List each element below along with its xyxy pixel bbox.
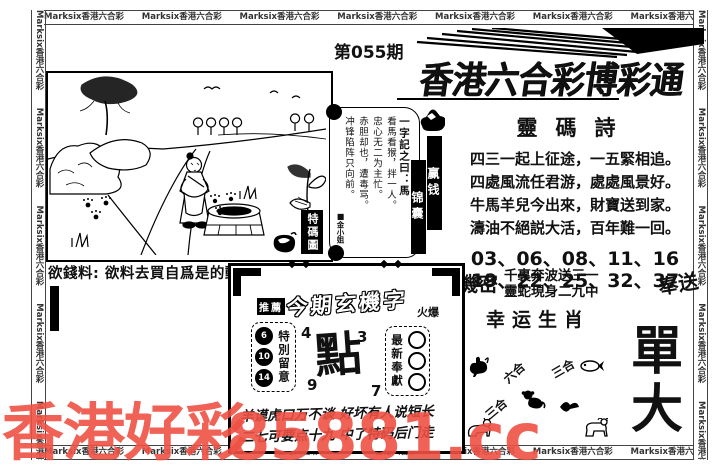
lucky-zodiac-heading: 幸运生肖 [486,305,590,332]
ink-bar [50,286,59,331]
latest-offering-numbers [408,331,426,391]
rooster-icon [468,355,490,377]
hot-tag: 火爆 [417,304,439,320]
mystery-word-title: 今期玄機字 [286,284,409,322]
scroll-roll-top [326,104,342,120]
big-char-single: 單 [631,326,683,378]
special-attention-badge: 6 10 14 特別留意 [251,322,296,392]
special-attention-numbers: 6 10 14 [255,327,273,387]
lottery-sheet-page: Marksix香港六合彩 Marksix香港六合彩 Marksix香港六合彩 M… [0,0,720,471]
special-number-picture: 特碼圖 [46,71,333,262]
goat-icon [582,418,608,438]
newspaper-title: 香港六合彩博彩通 [416,50,688,104]
lucky-numbers-row1: 03、06、08、11、16 [452,248,698,270]
zodiac-label-liuhe: 六合 [499,358,528,387]
issue-number: 第055期 [334,38,404,63]
birds [204,87,300,98]
top-marquee: Marksix香港六合彩 Marksix香港六合彩 Marksix香港六合彩 M… [44,10,694,25]
special-attention-label: 特別留意 [276,330,292,384]
corner-number-7: 7 [371,382,381,400]
secret-tip-row: 機密 千裏奔波送三一 靈蛇現身二九中 奉送 [458,268,698,300]
diamond-ornament [380,260,388,268]
riddle-text: 一字記之曰：馬看馬看猴，拌一人。忠心无二为主忙。赤胆却也，遭毒骂。冲锋陷阵只向前… [341,116,411,244]
zodiac-label-sanhe-1: 三合 [548,355,577,382]
ingot-icon [418,108,445,136]
scroll-roll-bottom [328,245,344,261]
special-number-stamp: 特碼圖 [301,210,323,254]
mystery-word-char: 點 [313,330,363,380]
fish-icon [580,358,604,374]
secret-line-1: 千裏奔波送三一 [504,268,652,284]
ribbon-tips-bag: 锦囊 [411,160,426,254]
horizon-trees [194,114,314,135]
cartoon-scene [48,73,326,255]
number-ball: 10 [255,348,273,366]
big-char-big: 大 [631,384,683,436]
left-marquee: Marksix香港六合彩 Marksix香港六合彩 Marksix香港六合彩 M… [31,10,46,460]
empty-ball [408,331,426,349]
diamond-ornament [394,260,402,268]
author-signature: 金小姐 [335,212,346,244]
number-ball: 14 [255,369,273,387]
well [204,204,264,235]
empty-ball [408,373,426,391]
masthead-divider [397,98,619,100]
secret-lines: 千裏奔波送三一 靈蛇現身二九中 [504,268,652,300]
spirit-code-poem: 靈碼詩 四三一起上征途，一五緊相追。四處風流任君游，處處風景好。牛馬羊兒今出來，… [452,112,698,292]
gift-label: 奉送 [656,265,700,301]
number-ball: 6 [255,327,273,345]
corner-ornament-tr [432,268,460,296]
masthead: 香港六合彩博彩通 [412,28,704,100]
latest-offering-badge: 最新奉獻 [385,326,430,396]
poem-title: 靈碼詩 [452,112,698,142]
watermark-site-name: 香港好彩 [2,402,246,464]
ink-pot-icon [271,230,297,254]
corner-number-4: 4 [301,324,311,342]
recommend-label: 推薦 [257,298,285,315]
watermark-site-url: 85881.cc [226,406,541,470]
latest-offering-label: 最新奉獻 [389,334,405,388]
ribbon-win-money: 赢钱 [427,136,442,230]
empty-ball [408,352,426,370]
poem-lines: 四三一起上征途，一五緊相追。四處風流任君游，處處風景好。牛馬羊兒今出來，財寶送到… [452,148,698,240]
corner-ornament-tl [233,268,261,296]
swallow-icon [558,398,580,414]
secret-line-2: 靈蛇現身二九中 [504,284,652,300]
riddle-scroll: 一字記之曰：馬看馬看猴，拌一人。忠心无二为主忙。赤胆却也，遭毒骂。冲锋陷阵只向前… [329,107,420,258]
